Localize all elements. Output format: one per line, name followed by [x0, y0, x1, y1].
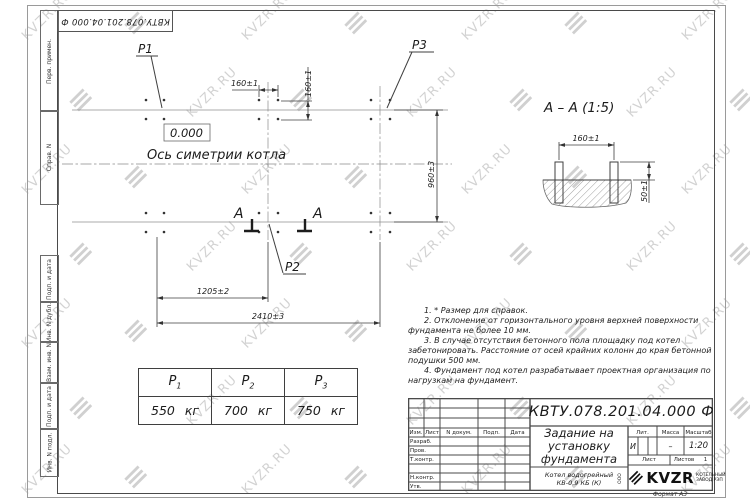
dim-160-top: 160±1 [231, 79, 278, 97]
frame-field-label: Подп. и дата [46, 259, 53, 300]
dim-160-top-text: 160±1 [231, 79, 258, 88]
col-izm: Изм. [408, 428, 424, 437]
watermark-logo-icon: ≡ [722, 81, 750, 119]
section-view: А – А (1:5) 160±1 50±1 [543, 100, 655, 207]
spring-logo-icon: ≡ [624, 466, 648, 490]
scale-value: 1:20 [684, 437, 713, 455]
p-subscript: 3 [322, 382, 327, 391]
load-table: P1 P2 P3 550 кг 700 кг 750 кг [138, 368, 358, 425]
logo-kvzr-text: KVZR [646, 469, 694, 487]
lit-label: Лит. [628, 428, 657, 437]
title-block: Изм. Лист N докум. Подп. Дата Разраб. Пр… [408, 398, 713, 491]
frame-field-label: Инв. N дубл. [46, 302, 53, 341]
watermark-logo-icon: ≡ [722, 389, 750, 427]
notes: 1. * Размер для справок. 2. Отклонение о… [408, 306, 715, 386]
load-table-header-p2: P2 [212, 369, 285, 397]
dim-2410-text: 2410±3 [252, 312, 284, 321]
row-prov: Пров. [408, 446, 442, 455]
drawing-sheet: { "designation": "КВТУ.078.201.04.000 Ф"… [0, 0, 750, 500]
product-name: Котел водогрейный КВ-0,9 КБ (К) [530, 467, 628, 491]
lit-value: И [628, 437, 638, 455]
sheets-value: 1 [698, 455, 713, 465]
section-letter-left: А [233, 206, 244, 222]
dim-160-side-text: 160±1 [304, 70, 313, 97]
elevation-mark: 0.000 [164, 124, 210, 141]
document-title: Задание на установку фундамента [530, 426, 628, 467]
frame-field-label: Инв. N подл. [46, 433, 53, 473]
point-p3: P3 [387, 38, 434, 108]
note-3: 3. В случае отсутствия бетонного пола пл… [408, 336, 715, 366]
row-tkontr: Т.контр. [408, 455, 442, 464]
point-p2-label: P2 [285, 260, 300, 274]
row-empty [408, 464, 442, 473]
col-podp: Подп. [478, 428, 505, 437]
section-dim-50-text: 50±1 [640, 180, 649, 202]
section-dim-160: 160±1 [559, 134, 614, 160]
row-razrab: Разраб. [408, 437, 442, 446]
dim-960: 960±3 [394, 110, 443, 222]
title-block-designation: КВТУ.078.201.04.000 Ф [530, 398, 713, 426]
row-utv: Утв. [408, 482, 442, 491]
load-table-header-p1: P1 [139, 369, 212, 397]
axis-label: Ось симетрии котла [147, 148, 286, 163]
watermark-logo-icon: ≡ [722, 235, 750, 273]
product-name-line1: Котел водогрейный [545, 471, 613, 479]
note-4: 4. Фундамент под котел разрабатывает про… [408, 366, 715, 386]
frame-field-label: Перв. примен. [46, 38, 53, 83]
frame-field-label: Справ. N [46, 144, 53, 171]
section-dim-160-text: 160±1 [572, 134, 599, 143]
dim-960-text: 960±3 [427, 161, 436, 188]
section-cut-marks: А А [233, 206, 323, 231]
scale-label: Масштаб [684, 428, 713, 437]
logo-ooo-text: ООО [618, 473, 623, 484]
load-table-header-p3: P3 [285, 369, 358, 397]
elevation-text: 0.000 [170, 126, 203, 140]
p-subscript: 2 [249, 382, 254, 391]
mass-value: – [657, 437, 684, 455]
note-1: 1. * Размер для справок. [408, 306, 715, 316]
frame-field-label: Взам. инв. N [46, 343, 53, 382]
col-list: Лист [424, 428, 440, 437]
dim-1205-text: 1205±2 [197, 287, 229, 296]
point-p3-label: P3 [412, 38, 427, 52]
sheet-label: Лист [628, 455, 670, 465]
sheets-label: Листов [670, 455, 698, 465]
format-label: Формат А3 [630, 491, 710, 498]
row-nkontr: Н.контр. [408, 473, 442, 482]
mass-label: Масса [657, 428, 684, 437]
p-subscript: 1 [176, 382, 181, 391]
point-p1-label: P1 [138, 42, 153, 56]
point-p1: P1 [136, 42, 162, 108]
frame-field-label: Подп. и дата [46, 386, 53, 427]
load-p3-value: 750 кг [285, 397, 358, 425]
note-2: 2. Отклонение от горизонтального уровня … [408, 316, 715, 336]
load-p2-value: 700 кг [212, 397, 285, 425]
col-data: Дата [505, 428, 530, 437]
dim-160-side: 160±1 [281, 67, 313, 120]
col-ndoc: N докум. [440, 428, 478, 437]
load-table-value-row: 550 кг 700 кг 750 кг [139, 397, 358, 425]
section-title: А – А (1:5) [543, 100, 614, 116]
document-title-line3: фундамента [541, 453, 617, 466]
product-name-line2: КВ-0,9 КБ (К) [545, 479, 613, 487]
dim-1205-2410: 1205±2 2410±3 [157, 237, 380, 327]
load-p1-value: 550 кг [139, 397, 212, 425]
load-table-header-row: P1 P2 P3 [139, 369, 358, 397]
logo-line2: ЗАВОД РЭП [696, 478, 726, 484]
section-letter-right: А [312, 206, 323, 222]
company-logo: ООО ≡ KVZR КОТЕЛЬНЫЙ ЗАВОД РЭП [628, 465, 713, 491]
